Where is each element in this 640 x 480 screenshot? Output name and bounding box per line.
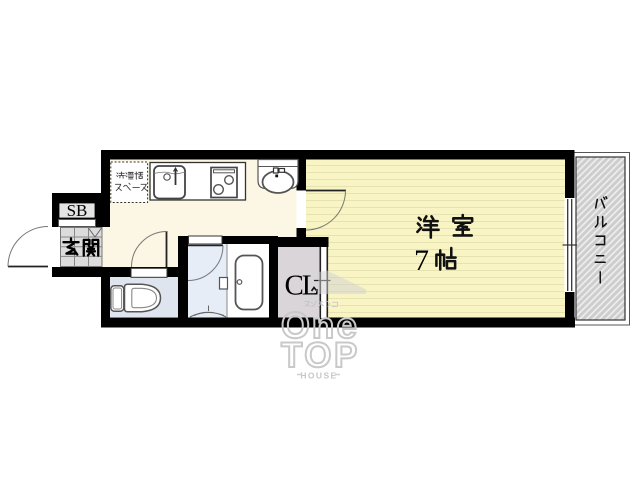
svg-text:7: 7 bbox=[414, 244, 429, 277]
svg-text:HOUSE: HOUSE bbox=[300, 371, 337, 381]
svg-text:TOP: TOP bbox=[281, 336, 360, 375]
svg-text:SB: SB bbox=[67, 201, 88, 220]
svg-text:CL: CL bbox=[284, 270, 317, 302]
